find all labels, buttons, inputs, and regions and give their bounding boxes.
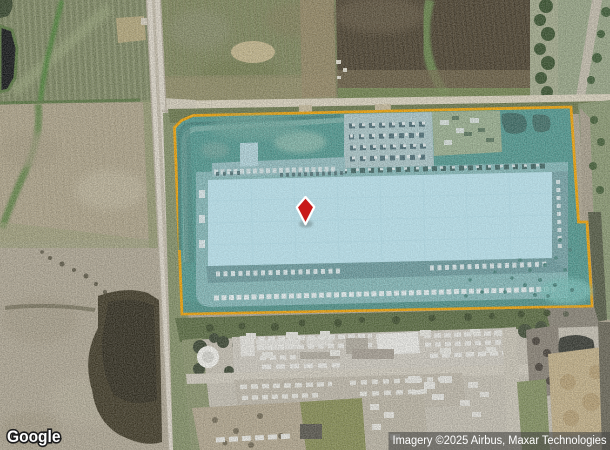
svg-text:Google: Google xyxy=(7,427,61,446)
svg-text:Imagery ©2025 Airbus, Maxar Te: Imagery ©2025 Airbus, Maxar Technologies xyxy=(393,435,607,447)
